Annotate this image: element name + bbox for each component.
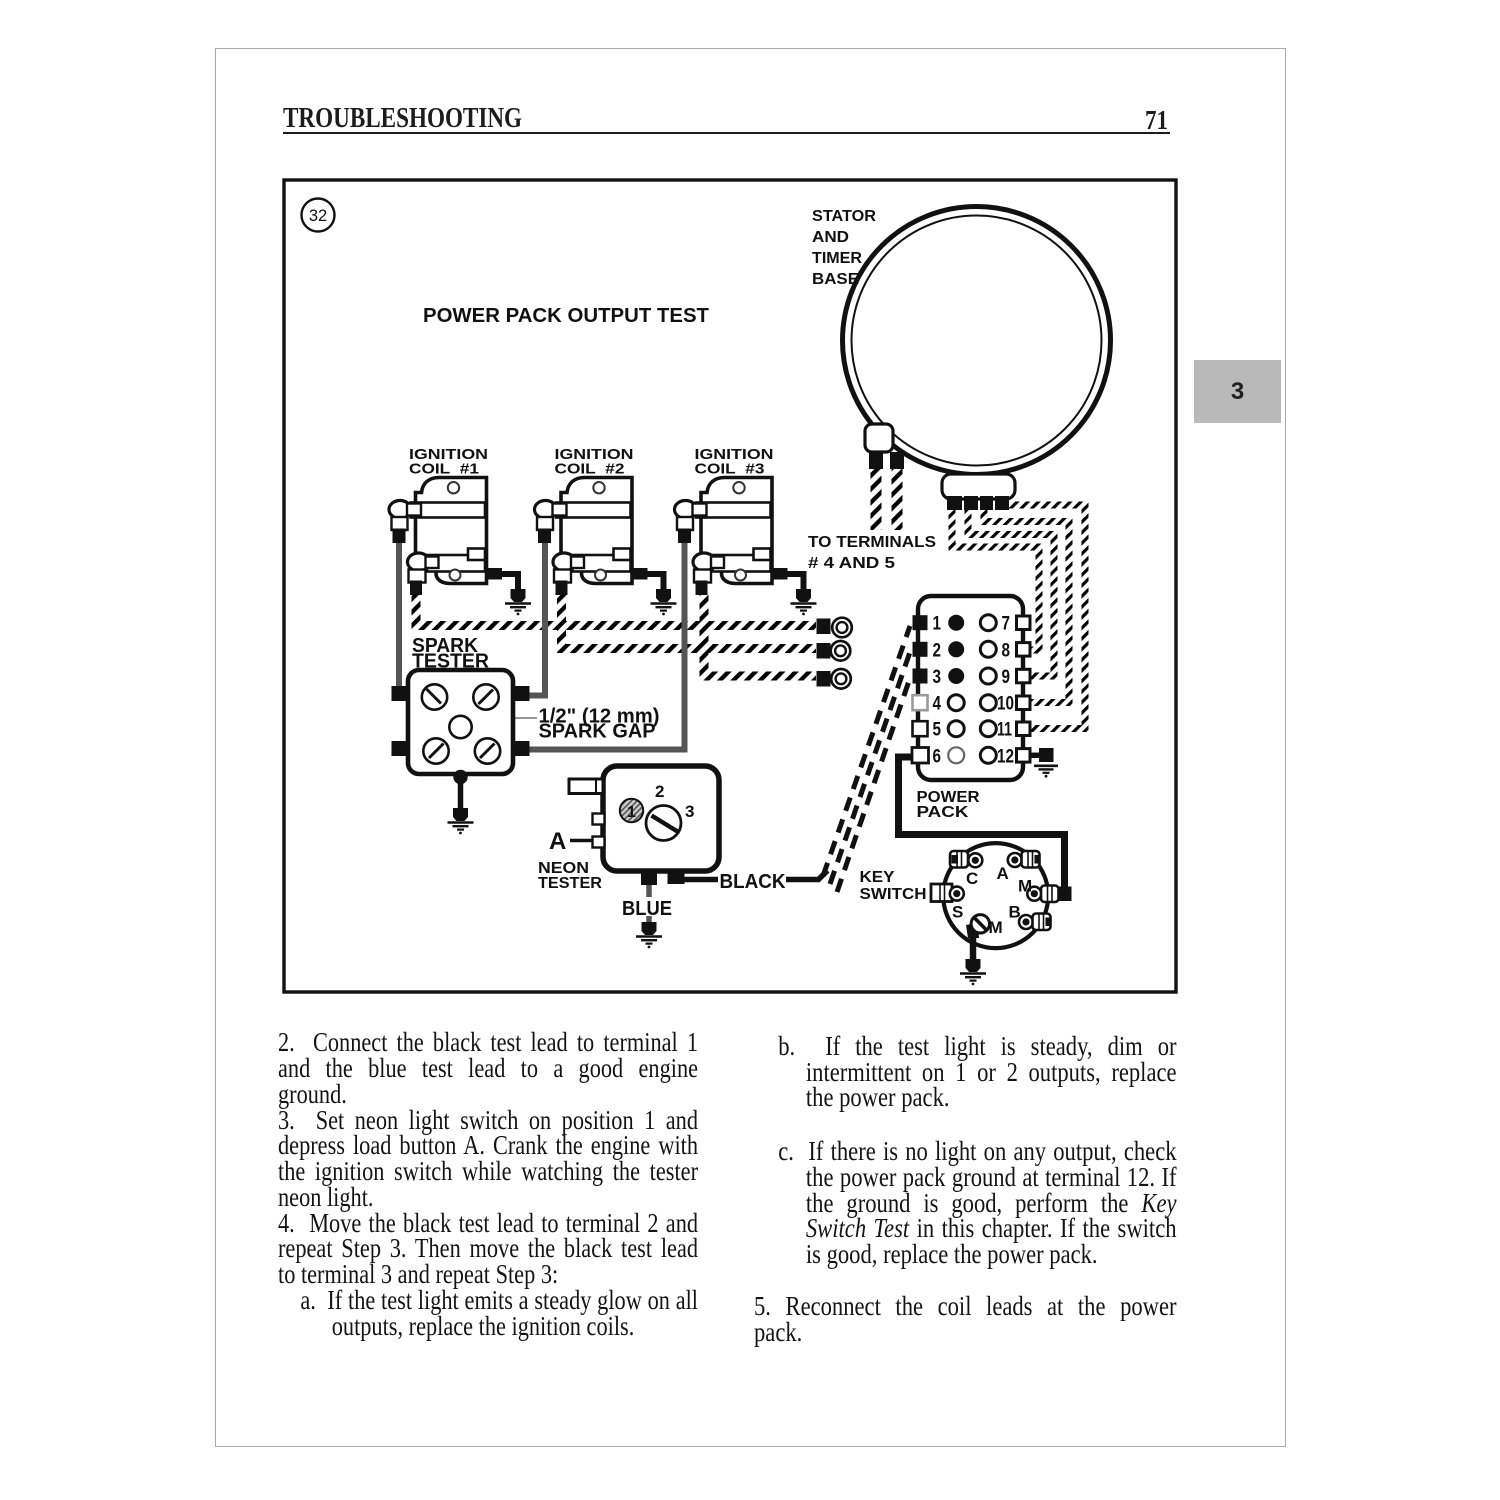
svg-text:AND: AND (812, 229, 849, 246)
svg-text:1: 1 (627, 804, 636, 821)
svg-text:SPARK GAP: SPARK GAP (539, 721, 656, 743)
svg-text:A: A (997, 864, 1009, 883)
svg-text:10: 10 (997, 694, 1014, 715)
svg-text:7: 7 (1002, 614, 1011, 635)
svg-text:5: 5 (933, 720, 942, 741)
svg-text:TO TERMINALS: TO TERMINALS (808, 534, 936, 551)
svg-text:1: 1 (933, 614, 942, 635)
svg-text:KEY: KEY (860, 869, 896, 886)
svg-text:M: M (1018, 877, 1032, 896)
svg-text:TIMER: TIMER (812, 250, 862, 267)
svg-text:COIL #1: COIL #1 (409, 461, 479, 478)
svg-text:# 4 AND 5: # 4 AND 5 (808, 555, 895, 572)
svg-text:12: 12 (997, 746, 1014, 767)
svg-text:TESTER: TESTER (538, 875, 602, 892)
svg-text:A: A (549, 828, 566, 855)
svg-text:S: S (952, 903, 963, 922)
svg-text:BASE: BASE (812, 271, 859, 288)
svg-text:M: M (989, 918, 1003, 937)
svg-text:32: 32 (309, 207, 327, 225)
svg-text:8: 8 (1002, 640, 1011, 661)
svg-text:9: 9 (1002, 667, 1011, 688)
svg-text:COIL #2: COIL #2 (555, 461, 625, 478)
svg-text:B: B (1009, 903, 1021, 922)
svg-text:2: 2 (655, 782, 664, 801)
svg-text:4: 4 (933, 694, 942, 715)
svg-text:3: 3 (685, 802, 694, 821)
svg-text:POWER PACK OUTPUT TEST: POWER PACK OUTPUT TEST (423, 305, 709, 327)
svg-text:11: 11 (997, 720, 1012, 741)
svg-text:PACK: PACK (917, 804, 970, 821)
svg-text:STATOR: STATOR (812, 208, 876, 225)
svg-text:6: 6 (933, 746, 942, 767)
svg-text:3: 3 (933, 667, 942, 688)
svg-text:C: C (966, 869, 978, 888)
svg-text:SWITCH: SWITCH (860, 886, 927, 903)
svg-text:COIL #3: COIL #3 (695, 461, 765, 478)
svg-text:2: 2 (933, 640, 942, 661)
svg-text:BLACK: BLACK (720, 870, 786, 893)
